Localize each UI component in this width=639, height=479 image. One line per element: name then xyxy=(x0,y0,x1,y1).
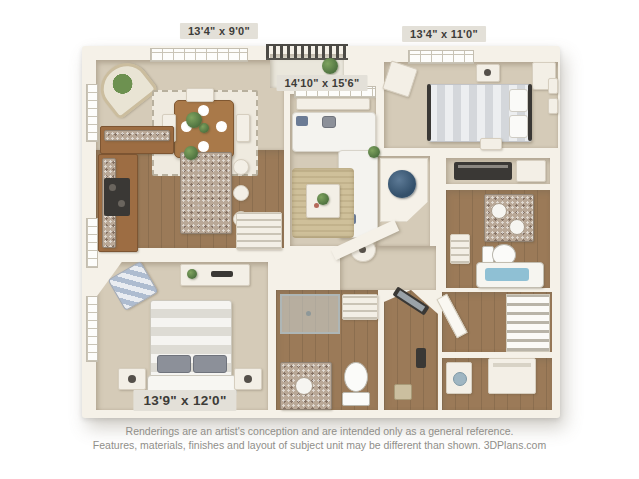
entry-closet-doors xyxy=(236,212,282,250)
burner xyxy=(109,184,116,191)
linen-shelf xyxy=(450,234,470,264)
bathroom1-vanity xyxy=(280,362,332,410)
closet-media-dresser xyxy=(454,162,512,180)
water-heater xyxy=(388,170,416,198)
bed-pillow xyxy=(193,355,227,373)
decor-dot xyxy=(314,203,319,208)
plate xyxy=(216,121,227,132)
nightstand xyxy=(234,368,262,390)
nightstand xyxy=(480,138,502,150)
sink xyxy=(509,219,525,235)
bed-pillow xyxy=(509,115,528,138)
sink xyxy=(295,377,313,395)
disclaimer-caption: Renderings are an artist's conception an… xyxy=(0,424,639,452)
sofa-pillow xyxy=(322,116,336,128)
lamp xyxy=(484,69,491,76)
bedroom2-bed xyxy=(428,84,532,142)
dresser-plant xyxy=(187,269,197,279)
floorplan-unit xyxy=(82,46,560,418)
lamp xyxy=(128,375,136,383)
dining-side-window xyxy=(86,84,98,142)
bedroom1-dimension-label: 13'9" x 12'0" xyxy=(133,390,236,411)
island-plant xyxy=(184,146,198,160)
over-toilet-shelf xyxy=(342,294,378,320)
kitchen-window xyxy=(86,218,98,268)
sink xyxy=(491,203,507,219)
disclaimer-line-1: Renderings are an artist's conception an… xyxy=(0,424,639,438)
dining-window xyxy=(150,48,248,62)
bed-pillow xyxy=(509,89,528,112)
dresser-top xyxy=(458,165,508,168)
disclaimer-line-2: Features, materials, finishes and layout… xyxy=(0,438,639,452)
bedroom1-dresser xyxy=(180,264,250,286)
washer-door xyxy=(453,372,467,386)
closet-hanging-clothes xyxy=(506,294,550,352)
plate xyxy=(198,141,209,152)
washer xyxy=(446,362,472,394)
living-plant xyxy=(368,146,380,158)
dresser-decor xyxy=(211,271,233,277)
console-table xyxy=(296,98,370,110)
bedroom2-window xyxy=(408,50,474,64)
wall-art-frame xyxy=(548,78,558,94)
sofa-pillow xyxy=(296,116,308,126)
bathroom2-vanity xyxy=(484,194,534,242)
wall-art-frame xyxy=(548,98,558,114)
burner xyxy=(118,200,125,207)
living-dimension-label: 14'10" x 15'6" xyxy=(277,75,368,91)
bedroom1-bed xyxy=(150,300,232,400)
closet-dresser xyxy=(416,348,426,368)
stove xyxy=(104,178,130,216)
kitchen-counter-top xyxy=(100,126,174,154)
dining-chair xyxy=(236,114,250,142)
balcony-plant xyxy=(322,58,338,74)
lamp xyxy=(244,375,252,383)
shower xyxy=(280,294,340,334)
bedroom2-dimension-label: 13'4" x 11'0" xyxy=(402,26,486,42)
bar-stool xyxy=(233,185,249,201)
coffee-table-flowers xyxy=(317,193,329,205)
bathtub xyxy=(476,262,544,288)
dryer xyxy=(488,358,536,394)
metal-headboard xyxy=(528,84,532,141)
coffee-table xyxy=(306,184,340,218)
storage-basket xyxy=(394,384,412,400)
bedroom1-window xyxy=(86,296,98,362)
nightstand xyxy=(476,64,500,82)
kitchen-island xyxy=(180,152,232,234)
dryer-controls xyxy=(493,363,531,367)
nightstand xyxy=(118,368,146,390)
metal-footboard xyxy=(427,84,431,141)
toilet-tank xyxy=(342,392,370,406)
dining-dimension-label: 13'4" x 9'0" xyxy=(180,23,258,39)
floorplan-screenshot: 13'4" x 9'0" 14'10" x 15'6" 13'4" x 11'0… xyxy=(0,0,639,479)
bathtub-water xyxy=(485,268,529,281)
dining-chair xyxy=(186,88,214,102)
toilet xyxy=(344,362,368,392)
bar-stool xyxy=(233,159,249,175)
balcony-railing xyxy=(266,44,348,60)
shower-drain xyxy=(306,311,311,316)
closet-shelf xyxy=(516,160,546,182)
bed-pillow xyxy=(157,355,191,373)
dining-table xyxy=(174,100,234,158)
kitchen-plant xyxy=(186,112,202,128)
kitchen-countertop-granite xyxy=(104,130,170,141)
